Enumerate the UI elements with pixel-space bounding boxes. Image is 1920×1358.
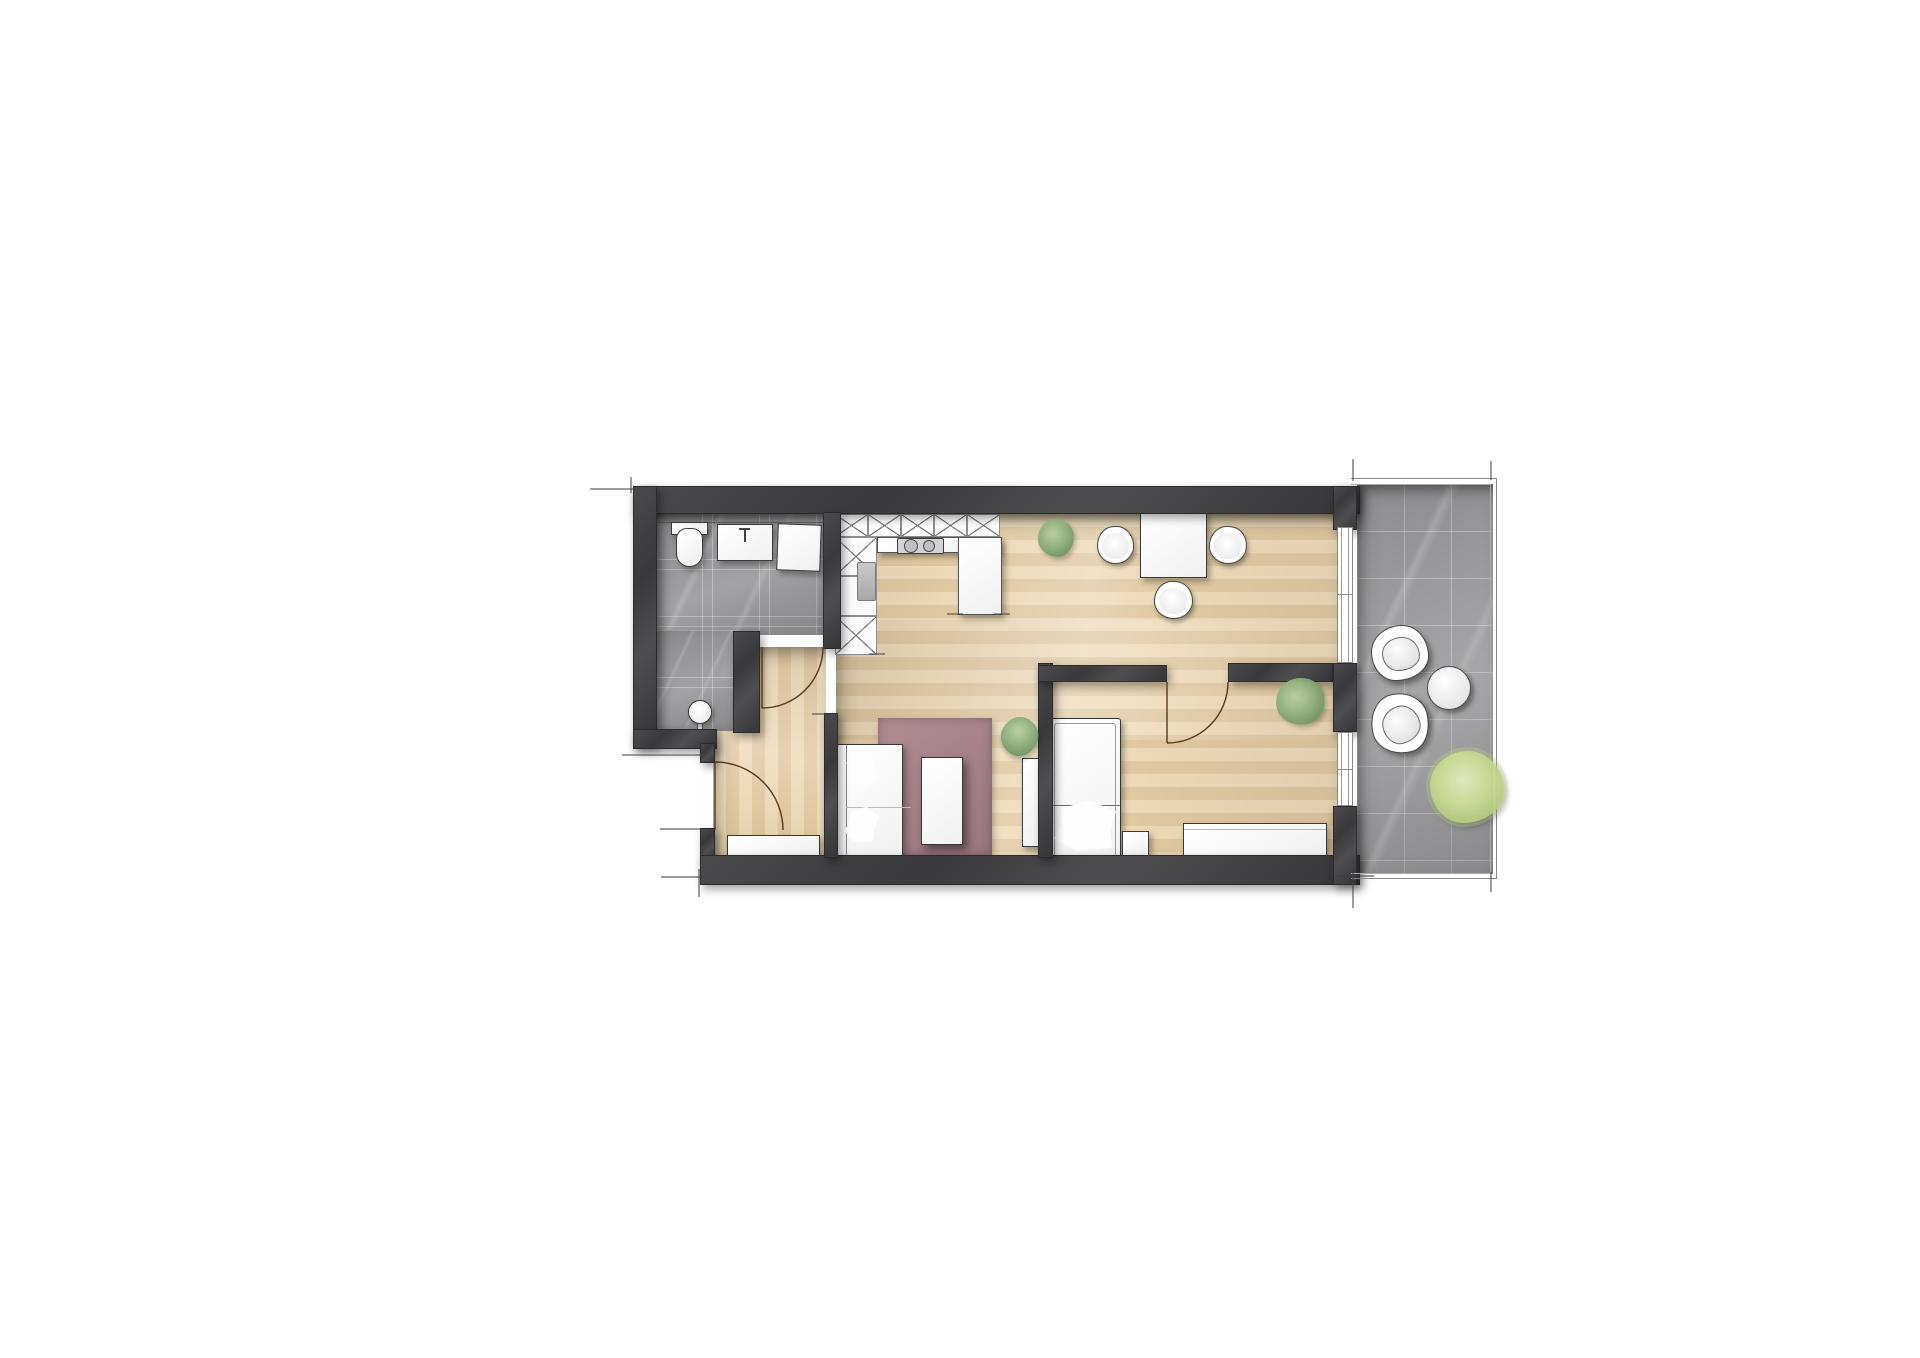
shower-fixture bbox=[688, 700, 712, 724]
faucet-icon-bar bbox=[739, 528, 750, 530]
living-sliding-glass-door bbox=[1337, 527, 1353, 663]
glass-mullion bbox=[1338, 594, 1352, 595]
built-in-appliance bbox=[857, 562, 876, 601]
cabinet-cell bbox=[901, 514, 934, 537]
wall-entry-west-upper bbox=[700, 743, 715, 763]
coffee-table bbox=[921, 757, 963, 845]
wall-bathroom-west bbox=[633, 486, 657, 747]
wardrobe-front-line bbox=[1184, 829, 1326, 830]
shower-unit bbox=[776, 523, 822, 572]
sofa-seat-line bbox=[846, 807, 911, 808]
wall-living-west bbox=[824, 713, 838, 858]
dining-potted-plant bbox=[1038, 519, 1074, 557]
wall-living-bedroom-divider bbox=[1038, 663, 1053, 858]
kitchen-peninsula bbox=[958, 537, 1002, 615]
floor-plan-canvas bbox=[0, 0, 1920, 1358]
wall-bedroom-north-left bbox=[1038, 665, 1167, 682]
glass-mullion bbox=[1338, 769, 1352, 770]
balcony-large-shrub bbox=[1430, 751, 1504, 823]
wall-bedroom-north-right bbox=[1228, 663, 1333, 682]
dining-table bbox=[1140, 512, 1207, 578]
faucet-icon bbox=[744, 528, 746, 542]
cooktop-burner-small bbox=[923, 540, 935, 552]
wall-south bbox=[700, 855, 1360, 885]
wall-north bbox=[633, 486, 1360, 514]
cabinet-cell bbox=[934, 514, 967, 537]
kitchen-tall-cabinet-row bbox=[835, 514, 1000, 537]
toilet-bowl bbox=[676, 528, 703, 567]
cabinet-cell bbox=[967, 514, 1000, 537]
nightstand bbox=[1122, 831, 1149, 858]
bedroom-window bbox=[1337, 732, 1353, 806]
wall-bathroom-entry-division bbox=[733, 631, 760, 733]
cabinet-cell bbox=[868, 514, 901, 537]
cooktop-burner-large bbox=[904, 539, 918, 553]
wall-bathroom-east bbox=[823, 512, 841, 649]
cabinet-cell bbox=[835, 616, 877, 655]
